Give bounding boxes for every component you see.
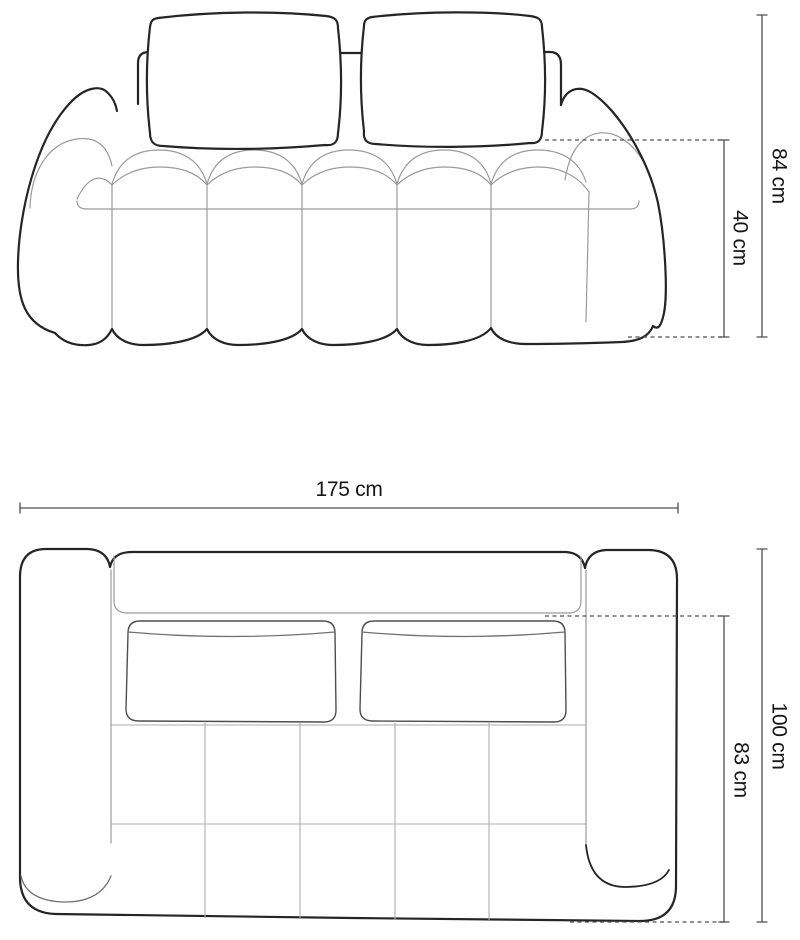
technical-drawing-canvas: 84 cm 40 cm 175 cm (0, 0, 800, 940)
top-view-body-outline (20, 549, 677, 921)
top-total-width-label: 175 cm (315, 478, 382, 501)
front-view-pillows (147, 12, 545, 149)
front-total-height-label: 84 cm (768, 148, 791, 204)
front-seat-height-label: 40 cm (729, 210, 752, 266)
front-view-seams (30, 133, 658, 329)
width-175-dimension-line (20, 503, 678, 513)
sofa-dimension-diagram: 84 cm 40 cm 175 cm (0, 0, 800, 940)
top-view: 175 cm (20, 478, 791, 922)
depth-83-dimension-line (719, 616, 729, 922)
front-view: 84 cm 40 cm (18, 12, 791, 345)
right-back-pillow (361, 12, 545, 147)
top-seat-depth-label: 83 cm (730, 742, 753, 798)
top-total-depth-label: 100 cm (768, 702, 791, 769)
front-view-dimensions: 84 cm 40 cm (545, 15, 791, 337)
height-40-dimension-line (719, 140, 729, 337)
left-back-pillow (147, 12, 341, 148)
top-view-width-dimension: 175 cm (20, 478, 678, 513)
height-84-dimension-line (757, 15, 767, 337)
depth-100-dimension-line (757, 549, 767, 922)
